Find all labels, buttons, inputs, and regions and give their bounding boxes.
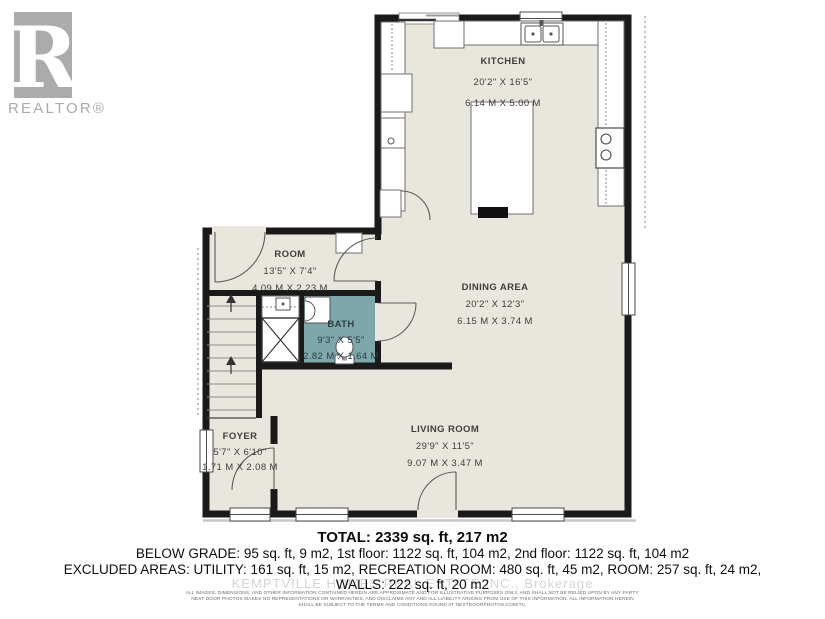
room-dim-ft: 13'5" X 7'4" [252, 263, 328, 280]
room-name: BATH [303, 317, 379, 333]
room-label-kitchen: KITCHEN 20'2" X 16'5" 6.14 M X 5.00 M [465, 51, 541, 114]
room-dim-ft: 5'7" X 6'10" [202, 445, 278, 461]
closet-x-icon [262, 318, 299, 362]
room-dim-m: 4.09 M X 2.23 M [252, 280, 328, 297]
laundry-area [262, 296, 299, 362]
room-name: KITCHEN [465, 51, 541, 72]
room-dim-ft: 20'2" X 12'3" [457, 296, 533, 313]
room-label-foyer: FOYER 5'7" X 6'10" 1.71 M X 2.08 M [202, 429, 278, 476]
floor-plan-page: R [0, 0, 825, 619]
room-label-bath: BATH 9'3" X 5'5" 2.82 M X 1.64 M [303, 317, 379, 365]
room-dim-m: 6.14 M X 5.00 M [465, 93, 541, 114]
room-dim-m: 6.15 M X 3.74 M [457, 313, 533, 330]
room-dim-m: 9.07 M X 3.47 M [407, 455, 483, 472]
window-dining-right [622, 263, 635, 315]
kitchen-island [471, 102, 533, 218]
room-name: FOYER [202, 429, 278, 445]
room-label-living: LIVING ROOM 29'9" X 11'5" 9.07 M X 3.47 … [407, 421, 483, 472]
room-dim-m: 1.71 M X 2.08 M [202, 460, 278, 476]
room-name: LIVING ROOM [407, 421, 483, 438]
room-name: ROOM [252, 246, 328, 263]
stove-icon [596, 128, 624, 168]
realtor-logo-icon: R [8, 8, 79, 107]
room-name: DINING AREA [457, 279, 533, 296]
floor-plan-drawing: R [0, 0, 825, 619]
room-label-dining: DINING AREA 20'2" X 12'3" 6.15 M X 3.74 … [457, 279, 533, 330]
room-dim-ft: 9'3" X 5'5" [303, 333, 379, 349]
window-living-bottom-right [512, 508, 564, 521]
room-closet [336, 233, 362, 253]
disclaimer: ALL IMAGES, DIMENSIONS, AND OTHER INFORM… [0, 591, 825, 608]
dishwasher-icon [434, 21, 464, 48]
area-summary: TOTAL: 2339 sq. ft, 217 m2 BELOW GRADE: … [0, 529, 825, 593]
kitchen-sink-icon [521, 20, 563, 45]
fridge-icon [381, 74, 412, 112]
window-living-bottom-left [296, 508, 348, 521]
disclaimer-line: SHALL BE SUBJECT TO THE TERMS AND CONDIT… [0, 603, 825, 609]
realtor-logo-r: R [8, 8, 79, 107]
summary-excluded: EXCLUDED AREAS: UTILITY: 161 sq. ft, 15 … [0, 562, 825, 578]
room-label-room: ROOM 13'5" X 7'4" 4.09 M X 2.23 M [252, 246, 328, 297]
room-dim-m: 2.82 M X 1.64 M [303, 349, 379, 365]
summary-total: TOTAL: 2339 sq. ft, 217 m2 [0, 529, 825, 546]
room-dim-ft: 20'2" X 16'5" [465, 72, 541, 93]
summary-floors: BELOW GRADE: 95 sq. ft, 9 m2, 1st floor:… [0, 546, 825, 562]
window-foyer-bottom [230, 508, 270, 521]
pantry-cabinet [380, 190, 401, 217]
realtor-brand-text: REALTOR® [8, 100, 108, 117]
room-dim-ft: 29'9" X 11'5" [407, 438, 483, 455]
